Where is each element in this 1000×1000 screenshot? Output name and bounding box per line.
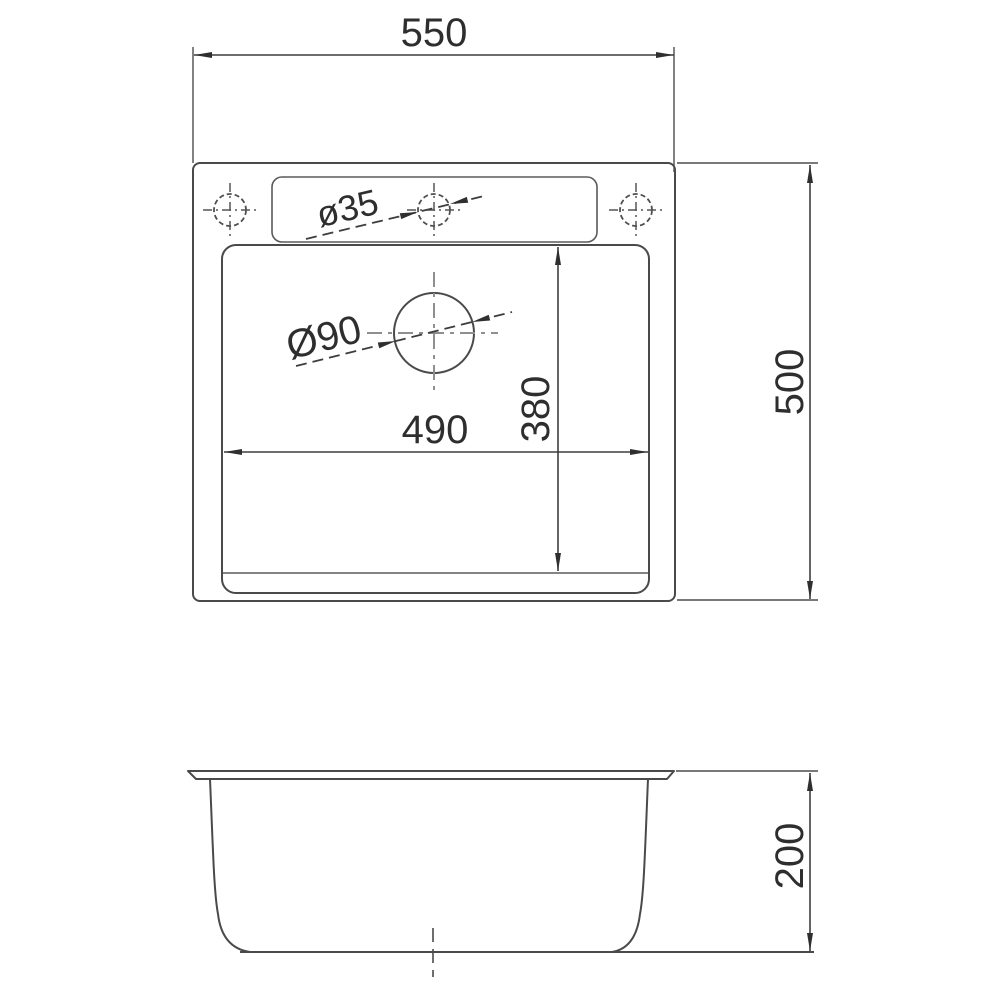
arrowhead-right: [449, 197, 468, 207]
arrowhead-right: [656, 52, 674, 58]
technical-drawing-canvas: 550 500 490: [0, 0, 1000, 1000]
faucet-hole-left: [203, 183, 257, 237]
arrowhead-left: [224, 449, 242, 455]
arrowhead-right: [471, 315, 490, 325]
dim-bowl-height-label: 200: [768, 823, 812, 890]
dim-faucet-hole-diameter-label: ø35: [312, 181, 382, 235]
dimension-overall-width: 550: [193, 11, 674, 172]
arrowhead-left: [194, 52, 212, 58]
faucet-hole-middle: [407, 183, 461, 237]
arrowhead-top: [555, 247, 561, 265]
arrowhead-bottom: [555, 553, 561, 571]
dim-overall-depth-label: 500: [768, 349, 812, 416]
faucet-hole-right: [609, 183, 663, 237]
dim-overall-width-label: 550: [401, 11, 468, 55]
arrowhead-bottom: [807, 933, 813, 951]
arrowhead-top: [807, 165, 813, 183]
side-view: 200: [188, 771, 818, 977]
dimension-bowl-width: 490: [224, 408, 648, 455]
arrowhead-top: [807, 773, 813, 791]
side-bowl-right-wall: [612, 779, 648, 952]
dim-drain-diameter-label: Ø90: [282, 307, 366, 368]
dimension-overall-depth: 500: [677, 163, 818, 600]
sink-dimension-drawing: 550 500 490: [0, 0, 1000, 1000]
side-bowl-left-wall: [210, 779, 250, 952]
dim-bowl-depth-label: 380: [514, 376, 558, 443]
dimension-bowl-height: 200: [676, 771, 818, 951]
arrowhead-bottom: [807, 581, 813, 599]
leader-faucet-hole-diameter: ø35: [306, 181, 484, 239]
arrowhead-right: [630, 449, 648, 455]
dimension-bowl-depth: 380: [514, 247, 561, 571]
side-rim-outline: [188, 771, 674, 779]
dim-bowl-width-label: 490: [402, 408, 469, 452]
top-view: 550 500 490: [193, 11, 818, 601]
